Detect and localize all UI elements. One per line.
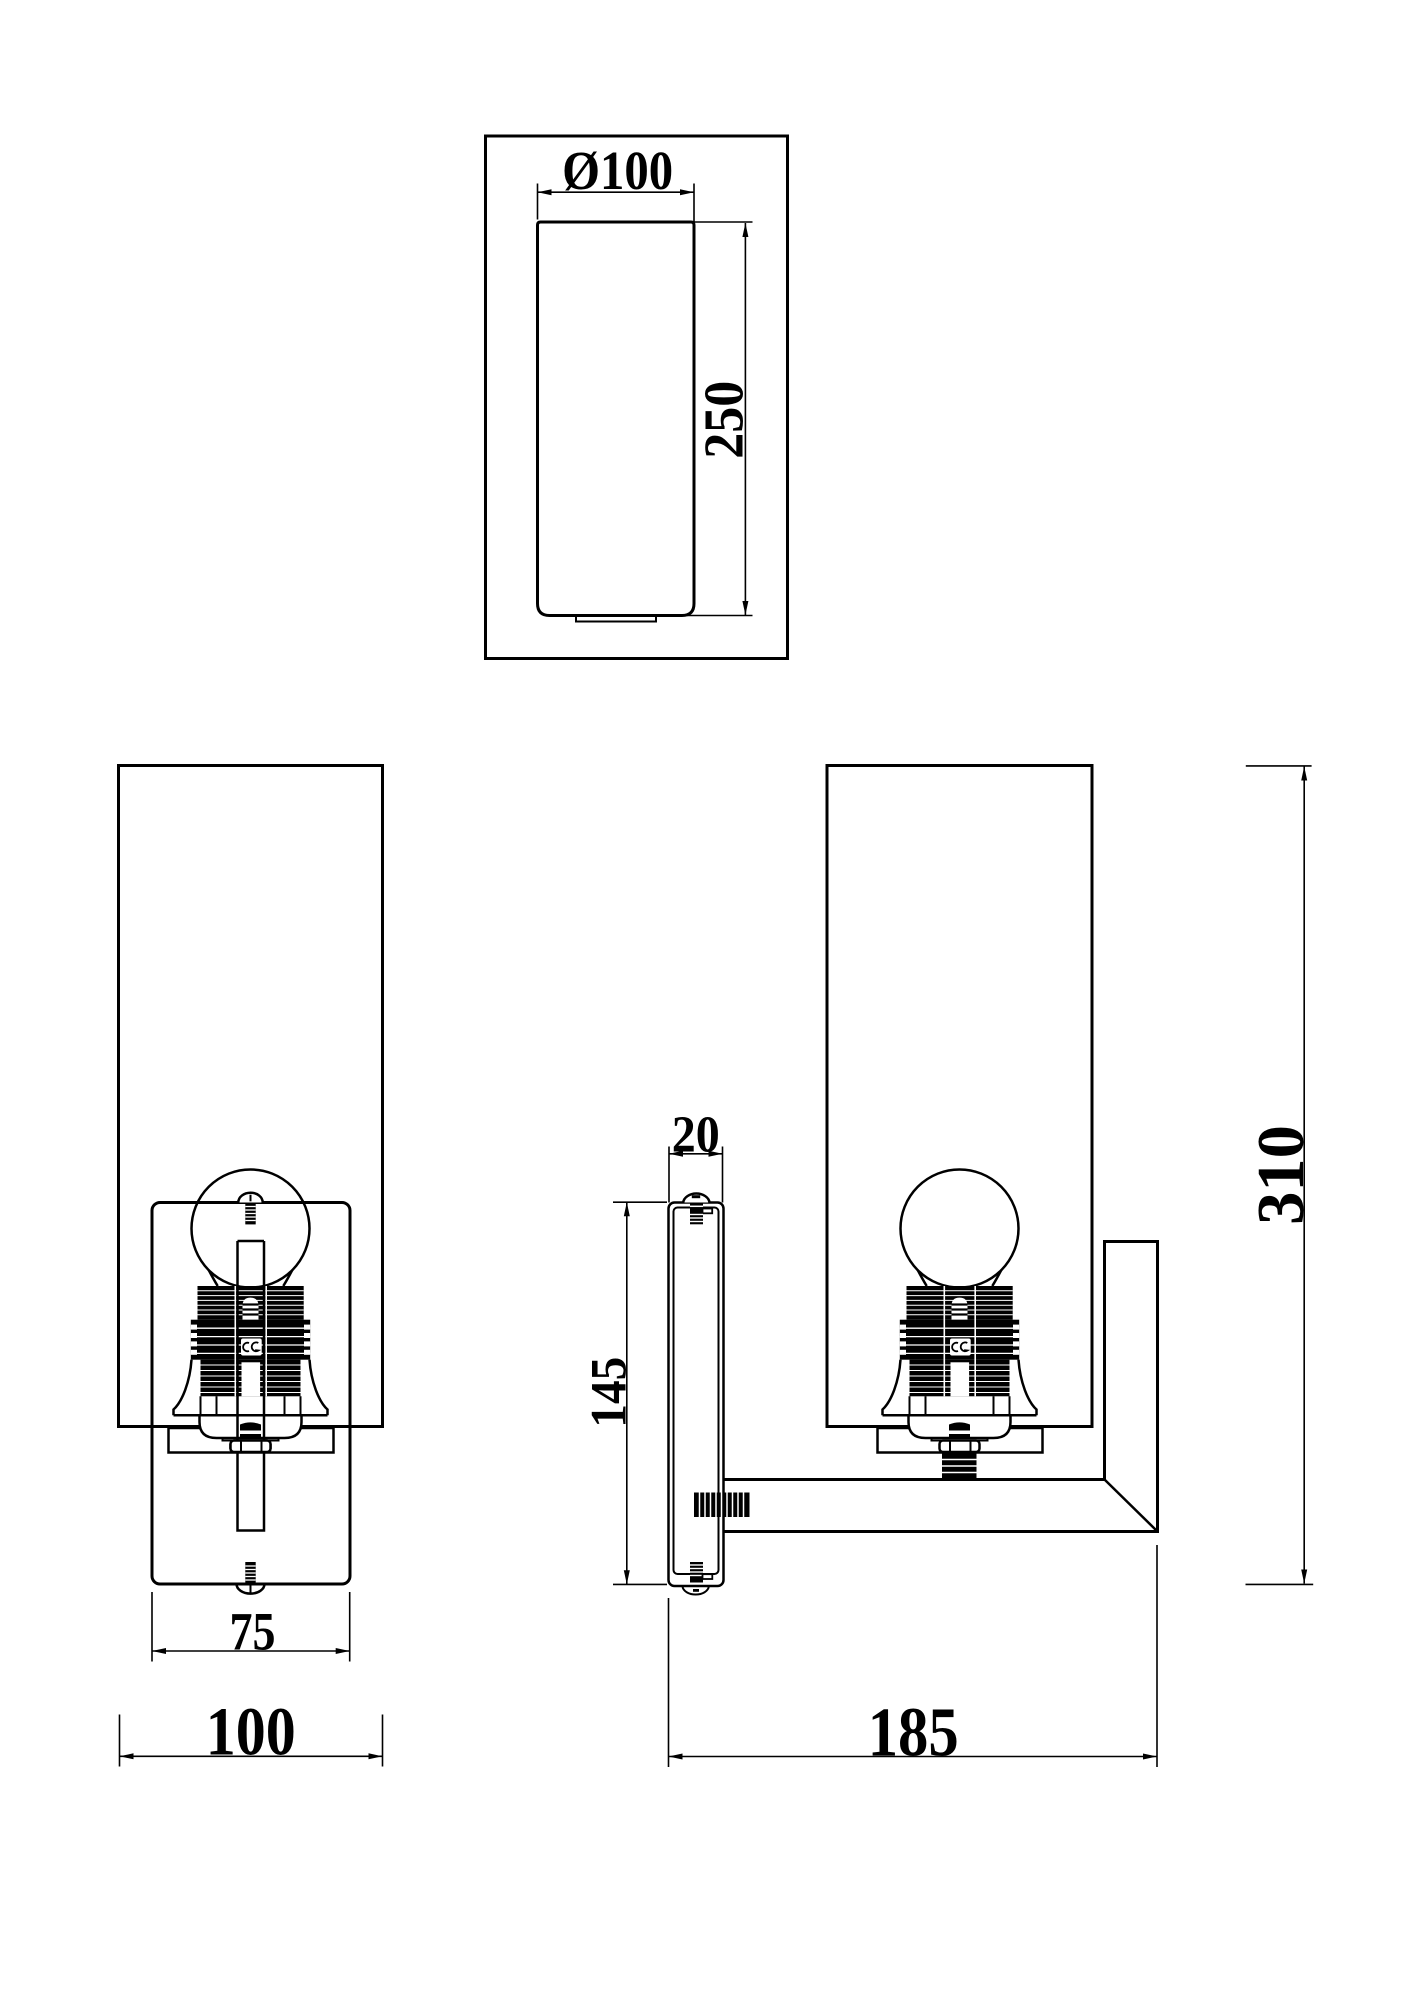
svg-text:Ø100: Ø100 — [562, 140, 673, 201]
svg-text:185: 185 — [868, 1694, 959, 1771]
svg-text:100: 100 — [206, 1693, 296, 1769]
svg-text:20: 20 — [672, 1107, 720, 1164]
svg-text:250: 250 — [694, 381, 756, 459]
svg-text:145: 145 — [582, 1357, 638, 1428]
svg-text:310: 310 — [1245, 1125, 1318, 1225]
svg-text:75: 75 — [230, 1602, 276, 1662]
